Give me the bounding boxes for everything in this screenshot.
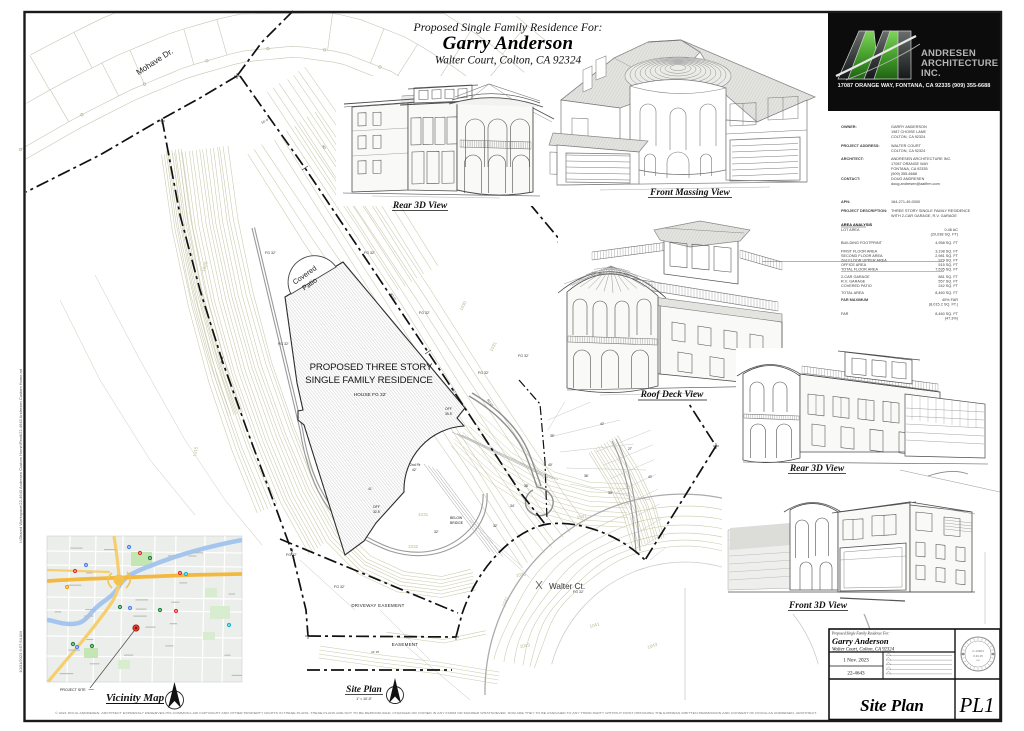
svg-text:SINGLE FAMILY RESIDENCE: SINGLE FAMILY RESIDENCE [305, 375, 432, 386]
svg-text:17087 ORANGE WAY: 17087 ORANGE WAY [891, 162, 929, 166]
svg-text:FG 32': FG 32' [265, 251, 276, 255]
svg-text:FG 32': FG 32' [334, 585, 345, 589]
svg-text:COLTON, CA 92324: COLTON, CA 92324 [891, 149, 925, 153]
svg-text:557 SQ. FT: 557 SQ. FT [938, 280, 958, 284]
svg-text:Front Massing View: Front Massing View [649, 188, 730, 198]
svg-text:AREA ANALYSIS: AREA ANALYSIS [841, 222, 873, 227]
svg-text:Garry Anderson: Garry Anderson [832, 636, 889, 646]
svg-text:32': 32' [434, 530, 439, 534]
svg-text:881 SQ. FT: 881 SQ. FT [938, 275, 958, 279]
svg-text:Rear 3D View: Rear 3D View [789, 464, 845, 474]
svg-text:HOUSE FG 32': HOUSE FG 32' [354, 392, 387, 398]
svg-text:FG 32': FG 32' [364, 251, 375, 255]
svg-text:2nd FLOOR UPPER AREA: 2nd FLOOR UPPER AREA [841, 259, 887, 263]
svg-text:40': 40' [648, 475, 653, 479]
svg-text:8,460 SQ. FT: 8,460 SQ. FT [935, 291, 958, 295]
svg-text:40': 40' [548, 463, 553, 467]
svg-text:WALTER COURT: WALTER COURT [891, 144, 922, 148]
svg-text:Walter Court, Colton, CA 92324: Walter Court, Colton, CA 92324 [435, 55, 582, 67]
svg-text:TOTAL AREA: TOTAL AREA [841, 291, 864, 295]
svg-text:PL1: PL1 [958, 693, 994, 717]
svg-text:Front 3D View: Front 3D View [788, 601, 848, 611]
svg-text:BELOW: BELOW [450, 516, 463, 520]
svg-text:FG 32': FG 32' [518, 354, 529, 358]
svg-text:242 SQ. FT: 242 SQ. FT [938, 284, 958, 288]
svg-text:Vicinity Map: Vicinity Map [106, 692, 165, 704]
svg-text:TOTAL FLOOR AREA: TOTAL FLOOR AREA [841, 268, 879, 272]
svg-text:SECOND FLOOR AREA: SECOND FLOOR AREA [841, 254, 883, 258]
svg-text:DRIVEWAY EASEMENT: DRIVEWAY EASEMENT [351, 603, 404, 608]
svg-text:INC.: INC. [921, 68, 941, 79]
svg-text:(20,038 SQ. FT): (20,038 SQ. FT) [931, 233, 959, 237]
svg-text:32.5': 32.5' [373, 510, 381, 514]
svg-text:Site Plan: Site Plan [860, 696, 924, 715]
svg-text:Site Plan: Site Plan [346, 685, 382, 695]
svg-text:CONTACT:: CONTACT: [841, 177, 860, 181]
svg-text:Roof Deck View: Roof Deck View [640, 390, 704, 400]
svg-text:34': 34' [510, 504, 515, 508]
svg-text:17087 ORANGE WAY, FONTANA, CA: 17087 ORANGE WAY, FONTANA, CA 92335 (909… [838, 83, 991, 89]
svg-text:Walter Court, Colton, CA 92324: Walter Court, Colton, CA 92324 [832, 648, 895, 653]
svg-text:exp: exp [976, 659, 981, 662]
svg-text:2,981 SQ. FT: 2,981 SQ. FT [935, 254, 958, 258]
svg-text:DOUG ANDRESEN: DOUG ANDRESEN [891, 177, 925, 181]
svg-text:ARCHITECT:: ARCHITECT: [841, 157, 864, 161]
svg-text:1" = 10'-0": 1" = 10'-0" [356, 697, 372, 701]
svg-text:2-CAR GARAGE: 2-CAR GARAGE [841, 275, 870, 279]
svg-text:PROPOSED THREE STORY: PROPOSED THREE STORY [310, 362, 433, 373]
svg-text:C-16904: C-16904 [972, 649, 984, 653]
svg-text:PROJECT SITE: PROJECT SITE [60, 688, 86, 692]
svg-text:3,198 SQ. FT: 3,198 SQ. FT [935, 250, 958, 254]
svg-text:42': 42' [412, 468, 417, 472]
svg-text:APN:: APN: [841, 200, 850, 204]
svg-text:ANDRESEN ARCHITECTURE INC.: ANDRESEN ARCHITECTURE INC. [891, 157, 951, 161]
svg-text:27': 27' [628, 447, 633, 451]
svg-text:35.5': 35.5' [445, 412, 453, 416]
svg-text:OFF: OFF [373, 505, 380, 509]
svg-text:FAR MAXIMUM: FAR MAXIMUM [841, 298, 868, 302]
svg-text:© 2021 DOUG ANDRESEN, ARCHITEC: © 2021 DOUG ANDRESEN, ARCHITECT EXPRESSL… [55, 711, 817, 715]
svg-text:164-271-49-0000: 164-271-49-0000 [891, 200, 920, 204]
svg-text:OFF: OFF [445, 407, 452, 411]
svg-text:GARRY ANDERSON: GARRY ANDERSON [891, 125, 927, 129]
svg-text:515 SQ. FT: 515 SQ. FT [938, 263, 958, 267]
svg-text:22-4643: 22-4643 [847, 671, 865, 677]
svg-text:7,535 SQ. FT: 7,535 SQ. FT [935, 268, 958, 272]
svg-text:40% FAR: 40% FAR [942, 298, 958, 302]
svg-text:Proposed Single Family Residen: Proposed Single Family Residence For: [413, 20, 603, 34]
svg-text:EASEMENT: EASEMENT [392, 642, 419, 647]
svg-text:(909) 355-6688: (909) 355-6688 [891, 172, 917, 176]
svg-text:FIRST FLOOR AREA: FIRST FLOOR AREA [841, 250, 878, 254]
svg-text:0.46 AC: 0.46 AC [944, 228, 958, 232]
svg-text:2nd Flr: 2nd Flr [410, 463, 421, 467]
svg-text:(47.3%): (47.3%) [945, 317, 959, 321]
svg-text:4,958 SQ. FT: 4,958 SQ. FT [935, 241, 958, 245]
svg-text:FG 32': FG 32' [278, 342, 289, 346]
svg-text:I:\Shared Workspace\22-4643 An: I:\Shared Workspace\22-4643 Andresen Cus… [18, 368, 23, 543]
svg-text:FG 32': FG 32' [573, 590, 584, 594]
svg-text:979 SQ. FT: 979 SQ. FT [938, 259, 958, 263]
svg-text:1987 CHOISE LANE: 1987 CHOISE LANE [891, 130, 926, 134]
svg-text:Garry Anderson: Garry Anderson [443, 33, 574, 54]
svg-text:OWNER:: OWNER: [841, 125, 857, 129]
svg-text:FG 32': FG 32' [478, 371, 489, 375]
svg-text:40': 40' [600, 422, 605, 426]
svg-text:32': 32' [493, 524, 498, 528]
svg-text:41' 25: 41' 25 [371, 650, 379, 654]
svg-text:doug.andresen@aaifirm.com: doug.andresen@aaifirm.com [891, 182, 940, 186]
svg-text:35': 35' [550, 434, 555, 438]
svg-text:WITH 2-CAR GARAGE, R.V. GARAGE: WITH 2-CAR GARAGE, R.V. GARAGE [891, 214, 957, 218]
svg-text:Proposed Single Family Residen: Proposed Single Family Residence For: [831, 632, 890, 636]
svg-text:BRIDGE: BRIDGE [450, 521, 464, 525]
svg-text:9-30-25: 9-30-25 [973, 654, 983, 658]
svg-text:LOT AREA: LOT AREA [841, 228, 860, 232]
svg-text:(8,015.2 SQ. FT.): (8,015.2 SQ. FT.) [929, 303, 959, 307]
svg-text:COVERED PATIO: COVERED PATIO [841, 284, 872, 288]
svg-text:1 Nov. 2023: 1 Nov. 2023 [843, 658, 869, 664]
svg-text:THREE STORY SINGLE FAMILY RESI: THREE STORY SINGLE FAMILY RESIDENCE [891, 209, 971, 213]
svg-text:BUILDING FOOTPRINT: BUILDING FOOTPRINT [841, 241, 883, 245]
svg-text:1031: 1031 [418, 512, 429, 517]
svg-text:36': 36' [584, 474, 589, 478]
svg-text:41': 41' [368, 487, 373, 491]
svg-text:PROJECT DESCRIPTION:: PROJECT DESCRIPTION: [841, 209, 887, 213]
svg-text:COLTON, CA 92324: COLTON, CA 92324 [891, 135, 925, 139]
svg-text:Rear 3D View: Rear 3D View [392, 201, 448, 211]
svg-text:OFFICE AREA: OFFICE AREA [841, 263, 867, 267]
svg-text:FONTANA, CA 92335: FONTANA, CA 92335 [891, 167, 928, 171]
svg-text:38': 38' [524, 484, 529, 488]
svg-text:PROJECT ADDRESS:: PROJECT ADDRESS: [841, 144, 880, 148]
svg-text:10/31/2023 9:57:54 AM: 10/31/2023 9:57:54 AM [18, 631, 23, 672]
svg-text:R.V. GARAGE: R.V. GARAGE [841, 280, 866, 284]
svg-text:FAR: FAR [841, 312, 849, 316]
svg-text:33': 33' [608, 491, 613, 495]
svg-text:FG 32': FG 32' [419, 311, 430, 315]
svg-text:1032: 1032 [408, 544, 419, 549]
svg-text:8,460 SQ. FT: 8,460 SQ. FT [935, 312, 958, 316]
